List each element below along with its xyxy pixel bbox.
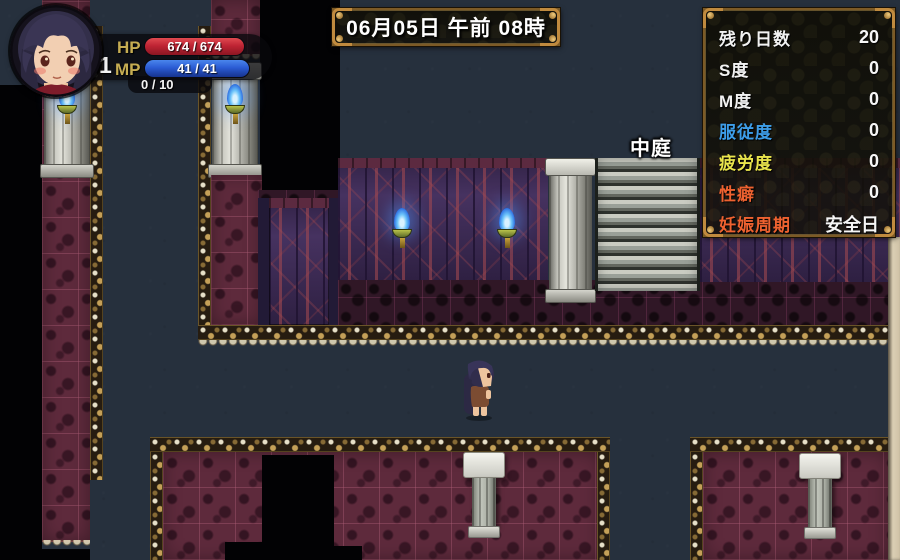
stat-row-pregnancy-cycle: 妊娠周期 安全日: [719, 208, 879, 239]
hp-value: 674 / 674: [167, 39, 221, 54]
void-upper: [260, 0, 340, 200]
stat-row-s-level: S度 0: [719, 53, 879, 84]
stone-pillar-topview: [463, 452, 505, 538]
player-portrait[interactable]: [10, 5, 102, 97]
ornament-corner-icon: [332, 26, 352, 46]
stat-row-fatigue: 疲労度 0: [719, 146, 879, 177]
stat-row-fetish: 性癖 0: [719, 177, 879, 208]
mp-value: 41 / 41: [177, 61, 217, 76]
datetime-text: 06月05日 午前 08時: [334, 10, 558, 44]
gold-trim: [597, 452, 610, 560]
stats-panel: 残り日数 20 S度 0 M度 0 服従度 0 疲労度 0 性癖 0: [703, 8, 895, 237]
location-label: 中庭: [608, 132, 694, 161]
gold-trim: [690, 452, 703, 560]
time-banner: 06月05日 午前 08時: [332, 8, 560, 46]
vine-wall-small: [258, 198, 340, 325]
stairwell-hole-edge: [225, 542, 262, 560]
player-character: [456, 356, 502, 422]
gold-trim: [150, 452, 163, 560]
mp-label: MP: [115, 60, 141, 80]
hp-bar: 674 / 674: [144, 37, 245, 56]
map-edge-light: [888, 237, 900, 560]
ornament-corner-icon: [332, 8, 352, 28]
stairs-to-courtyard[interactable]: [595, 158, 700, 291]
gold-trim-left: [90, 26, 103, 480]
game-screen: 中庭 HP 674 / 674 LV 1 MP 41 / 4: [0, 0, 900, 560]
stat-row-days-left: 残り日数 20: [719, 22, 879, 53]
blue-torch-icon: [390, 208, 414, 258]
stairwell-hole: [262, 455, 334, 560]
void-below-strip: [42, 549, 90, 560]
ornament-corner-icon: [540, 8, 560, 28]
stat-row-obedience: 服従度 0: [719, 115, 879, 146]
stone-pillar-topview: [799, 453, 841, 539]
ornament-corner-icon: [540, 26, 560, 46]
exp-value: 0 / 10: [141, 77, 174, 92]
mp-bar: 41 / 41: [144, 59, 250, 78]
blue-torch-icon: [495, 208, 519, 258]
stone-pillar-tall: [549, 158, 592, 303]
void-left: [0, 85, 42, 560]
lace-fringe: [198, 340, 900, 349]
stat-row-m-level: M度 0: [719, 84, 879, 115]
gold-trim: [150, 437, 610, 452]
gold-trim-wall-base: [198, 325, 900, 340]
blue-torch-icon: [223, 84, 247, 134]
stairwell-hole-edge: [334, 546, 362, 560]
gold-trim: [690, 437, 890, 452]
wall-tiles-mid: [211, 175, 262, 325]
hp-label: HP: [117, 38, 141, 58]
carpet-bottom-right: [703, 452, 888, 560]
lace-fringe: [42, 540, 90, 549]
